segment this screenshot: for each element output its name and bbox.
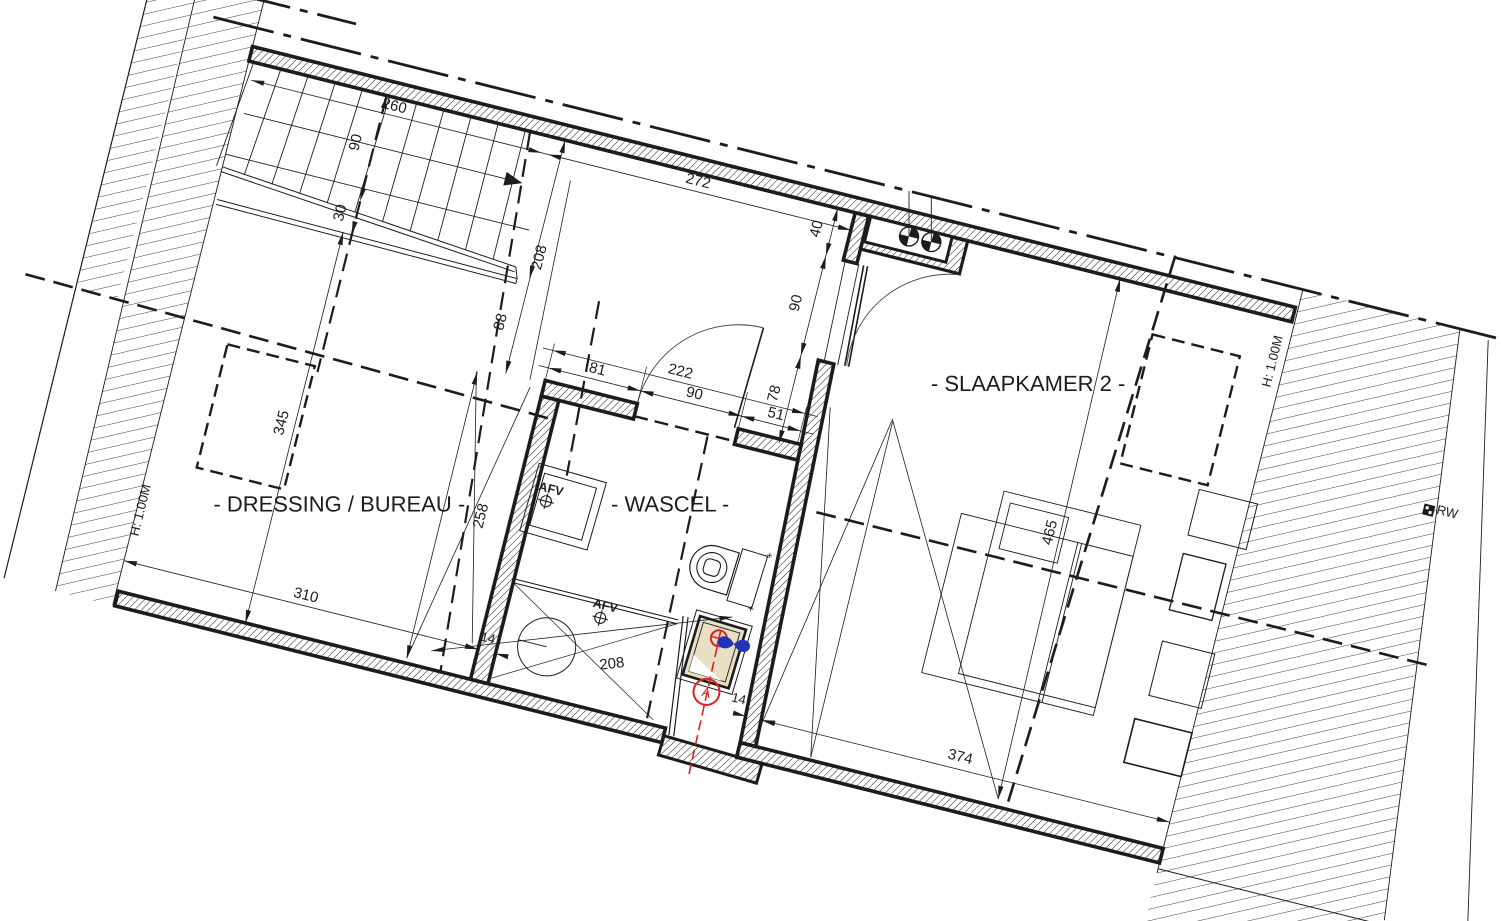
svg-text:- WASCEL -: - WASCEL -: [611, 492, 729, 517]
svg-text:- DRESSING / BUREAU -: - DRESSING / BUREAU -: [213, 491, 465, 516]
svg-text:208: 208: [598, 654, 625, 674]
svg-text:- SLAAPKAMER 2 -: - SLAAPKAMER 2 -: [931, 371, 1125, 396]
